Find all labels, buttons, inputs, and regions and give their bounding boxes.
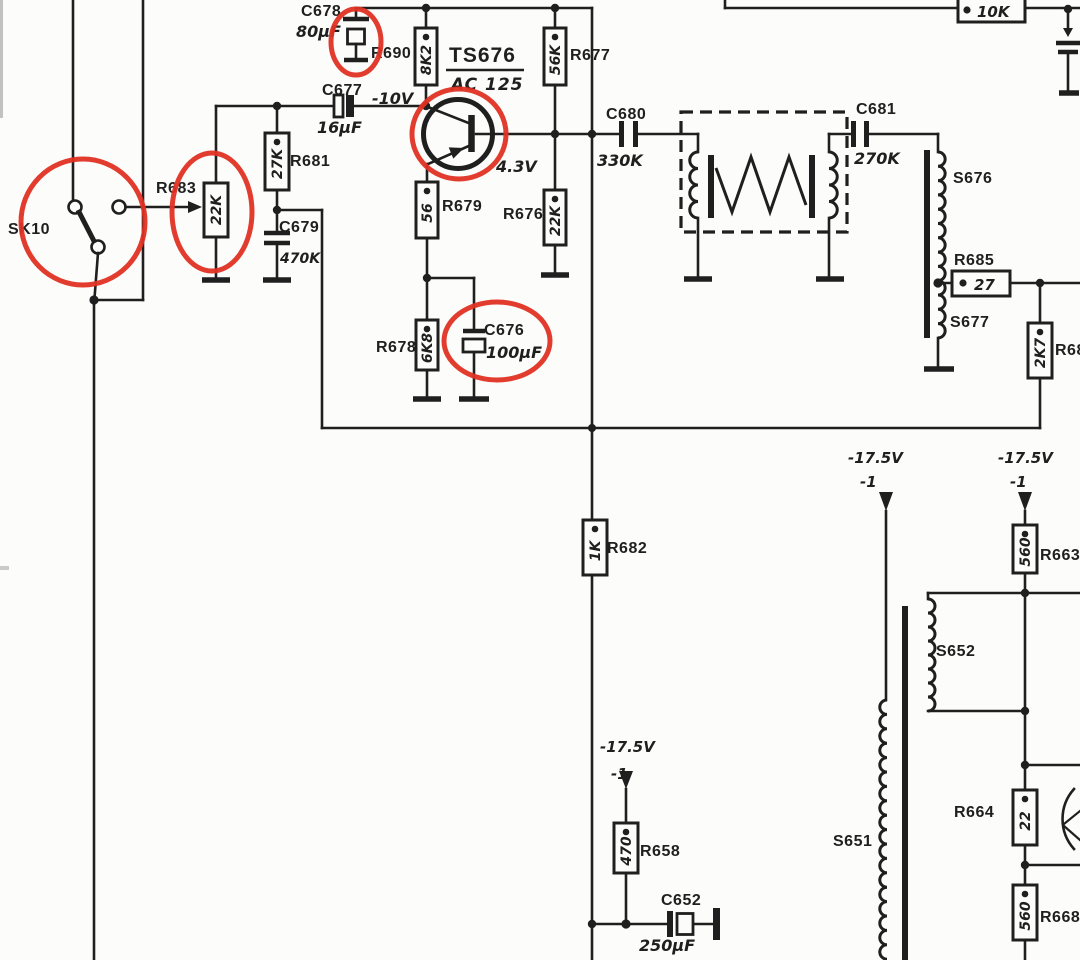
c679-label: C679 <box>279 219 319 236</box>
r68x-label: R68 <box>1055 342 1080 359</box>
supply-tap-r663: -1 <box>1010 473 1027 491</box>
c681-value: 270K <box>854 149 901 168</box>
sk10-label: SK10 <box>8 221 50 238</box>
supply-voltage-s651: -17.5V <box>848 449 904 467</box>
r678-value: 6K8 <box>420 333 436 364</box>
r679-label: R679 <box>442 198 482 215</box>
wire-segments <box>73 0 1080 960</box>
resistor-r676: 22K <box>544 190 566 245</box>
ts676-part: AC 125 <box>449 75 524 95</box>
supply-arrow-r663 <box>1018 492 1032 511</box>
r663-label: R663 <box>1040 547 1080 564</box>
resistor-r682: 1K <box>583 520 607 575</box>
r68x-value: 2K7 <box>1033 338 1049 369</box>
resistor-2k7: 2K7 <box>1028 323 1052 378</box>
schematic-page: SK10 22K 27K 8K2 56K 56 22K <box>0 0 1080 960</box>
resistor-r683: 22K <box>204 183 228 237</box>
annotation-circle-c676 <box>444 302 550 380</box>
coil-s651 <box>880 606 905 960</box>
resistor-r658: 470 <box>614 823 638 873</box>
ground-symbols <box>202 93 1079 399</box>
r679-value: 56 <box>420 203 436 223</box>
coil-s652 <box>928 599 935 711</box>
supply-arrow-s651 <box>879 492 893 511</box>
filter-block <box>681 112 847 232</box>
r664-label: R664 <box>954 804 994 821</box>
capacitor-c676 <box>463 331 485 352</box>
c681-label: C681 <box>856 101 896 118</box>
r682-value: 1K <box>588 540 604 562</box>
r10k-value: 10K <box>977 3 1011 21</box>
resonator-spring <box>716 157 806 212</box>
r681-label: R681 <box>290 153 330 170</box>
c679-value: 470K <box>279 251 321 267</box>
resistor-r685: 27 <box>952 271 1010 296</box>
r658-value: 470 <box>619 836 635 866</box>
arrow-to-r683 <box>188 201 202 213</box>
resistor-r677: 56K <box>544 28 566 85</box>
r685-value: 27 <box>974 276 995 294</box>
supply-voltage-r663: -17.5V <box>998 449 1054 467</box>
resistor-r679: 56 <box>416 182 438 238</box>
r668-label: R668 <box>1040 909 1080 926</box>
c677-value: 16µF <box>317 118 362 137</box>
scan-artifacts <box>0 0 9 570</box>
coil-s676-s677 <box>927 150 945 338</box>
r682-label: R682 <box>607 540 647 557</box>
resistor-r681: 27K <box>265 133 289 190</box>
supply-tap-r658: -1 <box>611 765 628 783</box>
resistor-r678: 6K8 <box>416 320 438 370</box>
r690-value: 8K2 <box>419 45 435 75</box>
c678-label: C678 <box>301 3 341 20</box>
resistor-r664: 22 <box>1013 790 1037 845</box>
r677-value: 56K <box>548 44 564 75</box>
s677-label: S677 <box>950 314 989 331</box>
r681-value: 27K <box>270 148 286 179</box>
c680-value: 330K <box>597 151 644 170</box>
r668-value: 560 <box>1018 901 1034 930</box>
resistor-r690: 8K2 <box>415 28 437 85</box>
terminal-bar <box>713 908 720 940</box>
s676-label: S676 <box>953 170 992 187</box>
c652-label: C652 <box>661 892 701 909</box>
c676-value: 100µF <box>486 343 542 362</box>
r683-value: 22K <box>209 194 225 225</box>
junction-dots <box>89 4 1072 929</box>
supply-voltage-r658: -17.5V <box>600 738 656 756</box>
capacitor-c681 <box>851 121 869 147</box>
r664-value: 22 <box>1018 811 1034 830</box>
s651-label: S651 <box>833 833 872 850</box>
c680-label: C680 <box>606 106 646 123</box>
s652-label: S652 <box>936 643 975 660</box>
supply-tap-s651: -1 <box>860 473 877 491</box>
ts676-ref: TS676 <box>449 44 516 67</box>
capacitor-top-right <box>1056 28 1080 52</box>
r676-label: R676 <box>503 206 543 223</box>
resistor-r663: 560 <box>1013 525 1037 573</box>
emitter-voltage: 4.3V <box>495 157 538 176</box>
r677-label: R677 <box>570 47 610 64</box>
resistor-10k: 10K <box>958 0 1025 22</box>
schematic-canvas: SK10 22K 27K 8K2 56K 56 22K <box>0 0 1080 960</box>
r663-value: 560 <box>1018 537 1034 566</box>
r676-value: 22K <box>548 205 564 236</box>
r658-label: R658 <box>640 843 680 860</box>
resistor-r668: 560 <box>1013 885 1037 940</box>
clipped-transistor-edge <box>1063 789 1080 849</box>
c677-label: C677 <box>322 82 362 99</box>
capacitor-c680 <box>619 121 638 147</box>
collector-voltage: -10V <box>372 89 415 108</box>
r678-label: R678 <box>376 339 416 356</box>
c676-label: C676 <box>484 322 524 339</box>
capacitor-c678 <box>343 8 369 60</box>
c652-value: 250µF <box>639 936 695 955</box>
r685-label: R685 <box>954 252 994 269</box>
switch-sk10 <box>69 201 203 254</box>
